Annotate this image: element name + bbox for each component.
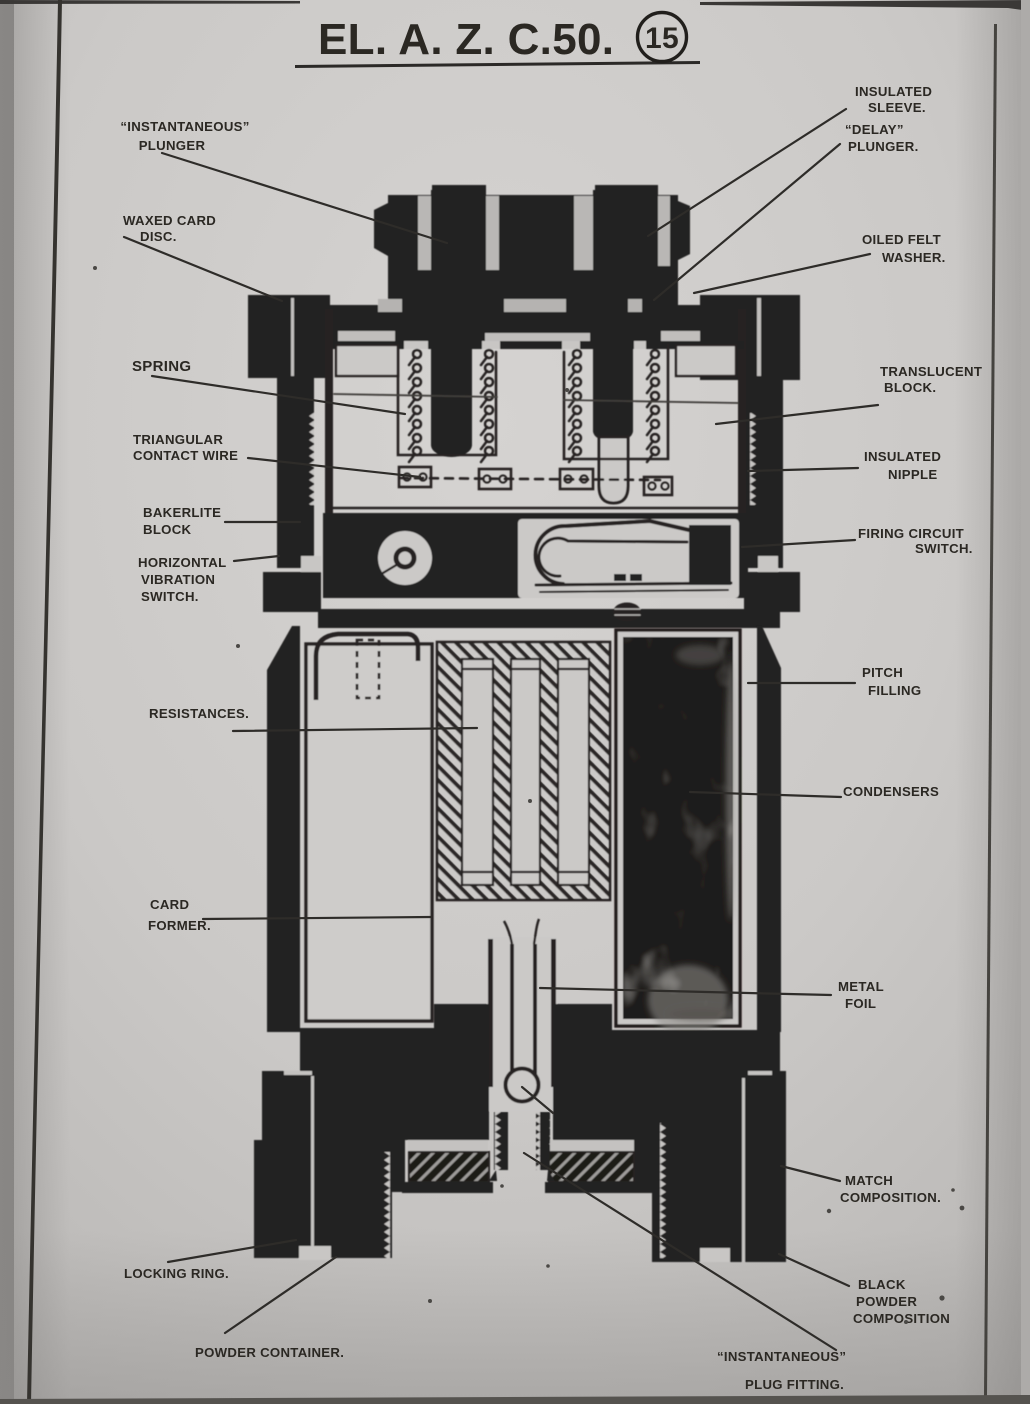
svg-text:CONDENSERS: CONDENSERS xyxy=(843,784,939,799)
svg-text:OILED FELT: OILED FELT xyxy=(862,232,941,247)
svg-text:SLEEVE.: SLEEVE. xyxy=(868,100,926,115)
svg-text:COMPOSITION.: COMPOSITION. xyxy=(840,1190,941,1205)
svg-text:BLOCK: BLOCK xyxy=(143,522,192,537)
svg-text:HORIZONTAL: HORIZONTAL xyxy=(138,555,226,570)
svg-text:WAXED CARD: WAXED CARD xyxy=(123,213,216,228)
svg-text:FILLING: FILLING xyxy=(868,683,921,698)
svg-text:BLOCK.: BLOCK. xyxy=(884,380,936,395)
svg-text:PITCH: PITCH xyxy=(862,665,903,680)
svg-text:BAKERLITE: BAKERLITE xyxy=(143,505,221,520)
svg-text:LOCKING RING.: LOCKING RING. xyxy=(124,1266,229,1281)
svg-text:COMPOSITION: COMPOSITION xyxy=(853,1311,950,1326)
svg-text:WASHER.: WASHER. xyxy=(882,250,946,265)
svg-text:INSULATED: INSULATED xyxy=(864,449,941,464)
svg-text:TRANSLUCENT: TRANSLUCENT xyxy=(880,364,982,379)
svg-text:PLUNGER.: PLUNGER. xyxy=(848,139,919,154)
svg-text:“INSTANTANEOUS”: “INSTANTANEOUS” xyxy=(717,1349,846,1364)
svg-text:VIBRATION: VIBRATION xyxy=(141,572,215,587)
svg-text:NIPPLE: NIPPLE xyxy=(888,467,937,482)
svg-text:BLACK: BLACK xyxy=(858,1277,906,1292)
svg-text:FOIL: FOIL xyxy=(845,996,876,1011)
svg-text:FORMER.: FORMER. xyxy=(148,918,211,933)
svg-text:INSULATED: INSULATED xyxy=(855,84,932,99)
svg-text:“INSTANTANEOUS”: “INSTANTANEOUS” xyxy=(120,119,249,134)
svg-text:RESISTANCES.: RESISTANCES. xyxy=(149,706,249,721)
svg-text:DISC.: DISC. xyxy=(140,229,177,244)
svg-text:MATCH: MATCH xyxy=(845,1173,893,1188)
svg-text:CARD: CARD xyxy=(150,897,189,912)
svg-text:PLUNGER: PLUNGER xyxy=(139,138,206,153)
svg-text:POWDER: POWDER xyxy=(856,1294,917,1309)
svg-text:CONTACT WIRE: CONTACT WIRE xyxy=(133,448,238,463)
svg-text:“DELAY”: “DELAY” xyxy=(845,122,904,137)
svg-text:SPRING: SPRING xyxy=(132,358,191,375)
svg-text:SWITCH.: SWITCH. xyxy=(141,589,199,604)
svg-text:POWDER CONTAINER.: POWDER CONTAINER. xyxy=(195,1345,344,1360)
svg-text:TRIANGULAR: TRIANGULAR xyxy=(133,432,223,447)
svg-text:15: 15 xyxy=(645,22,679,55)
svg-text:FIRING CIRCUIT: FIRING CIRCUIT xyxy=(858,526,964,541)
svg-text:SWITCH.: SWITCH. xyxy=(915,541,973,556)
svg-text:METAL: METAL xyxy=(838,979,884,994)
svg-text:EL. A. Z. C.50.: EL. A. Z. C.50. xyxy=(318,15,614,64)
svg-text:PLUG FITTING.: PLUG FITTING. xyxy=(745,1377,844,1392)
